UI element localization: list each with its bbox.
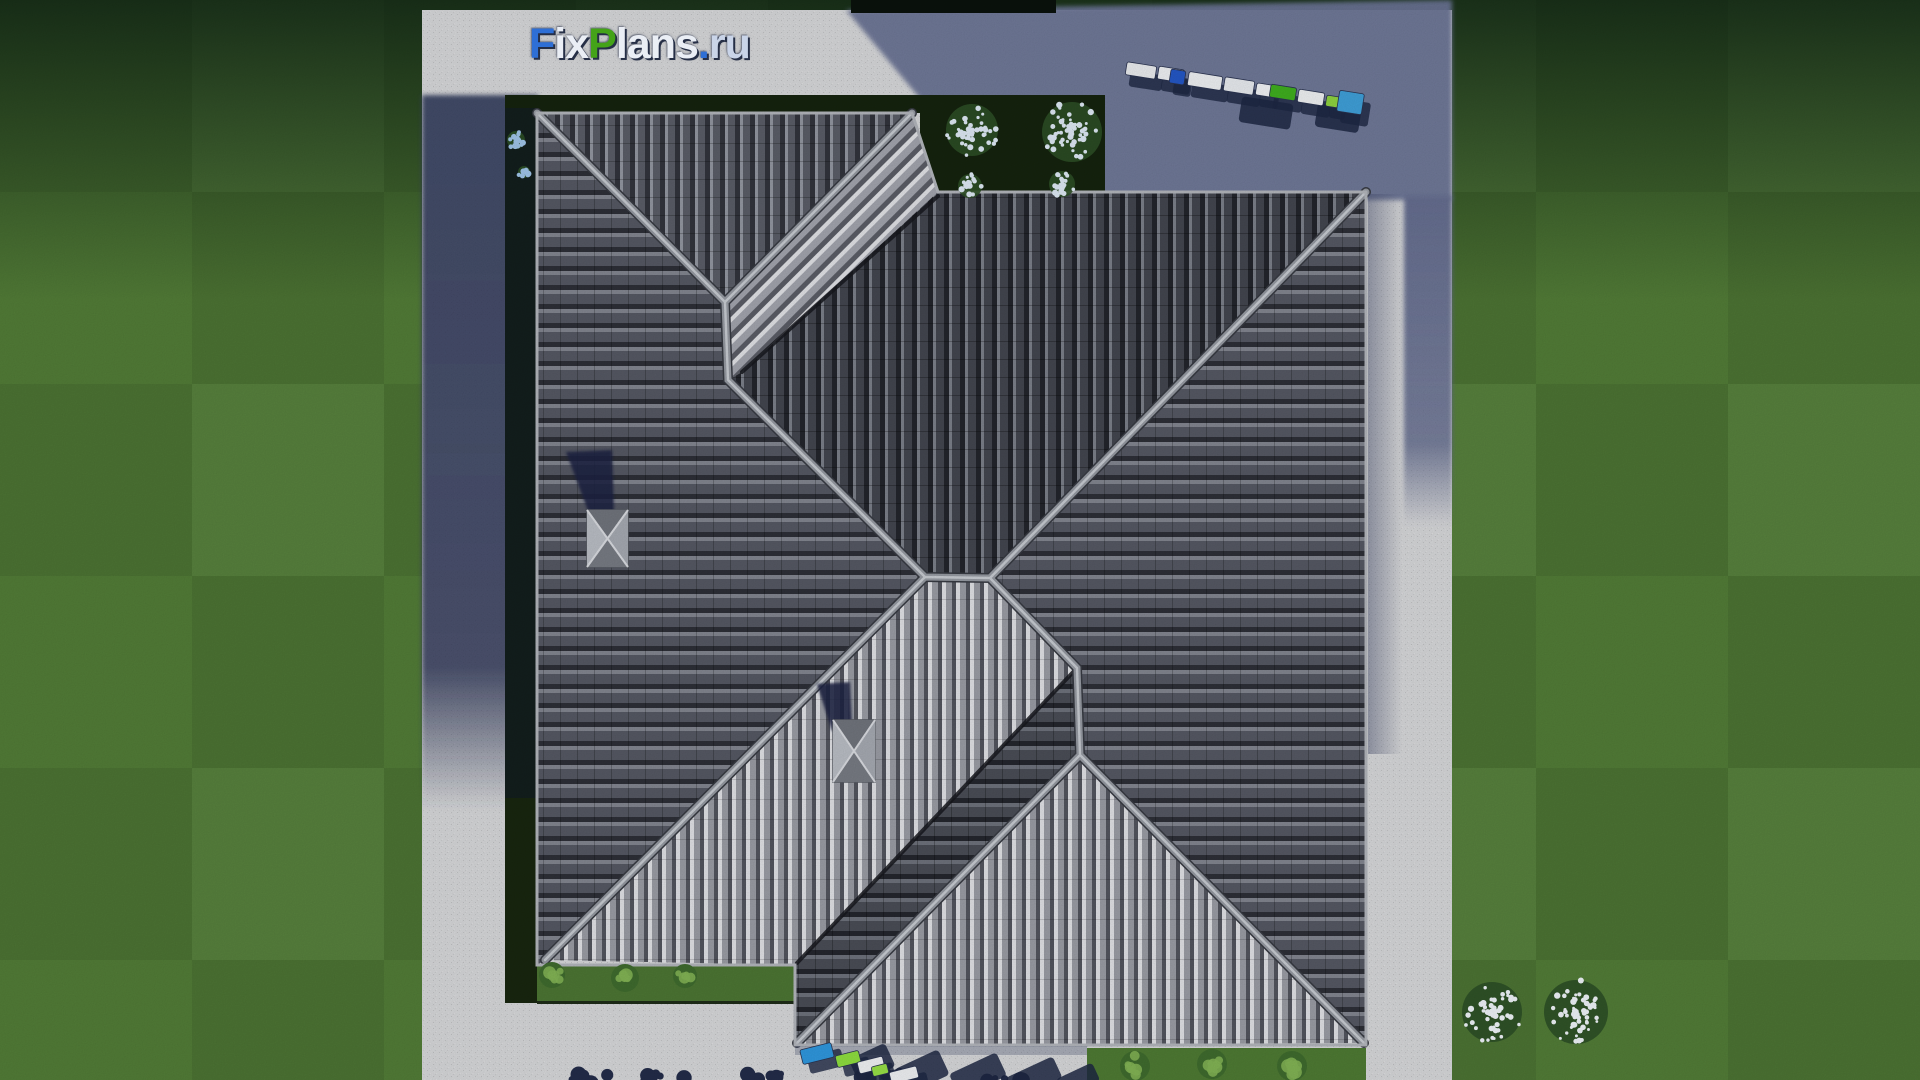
watermark-logo: FixPlans.ru: [529, 20, 750, 69]
watermark-segment-2: P: [588, 20, 616, 68]
watermark-segment-1: ix: [554, 20, 588, 68]
scene-canvas: [0, 0, 1920, 1080]
aerial-roof-render-scene: FixPlans.ru: [0, 0, 1920, 1080]
watermark-segment-0: F: [529, 20, 554, 68]
watermark-segment-3: lans: [616, 20, 698, 68]
watermark-segment-5: ru: [709, 20, 750, 68]
watermark-segment-4: .: [698, 20, 709, 68]
grain-overlay: [0, 0, 1920, 1080]
